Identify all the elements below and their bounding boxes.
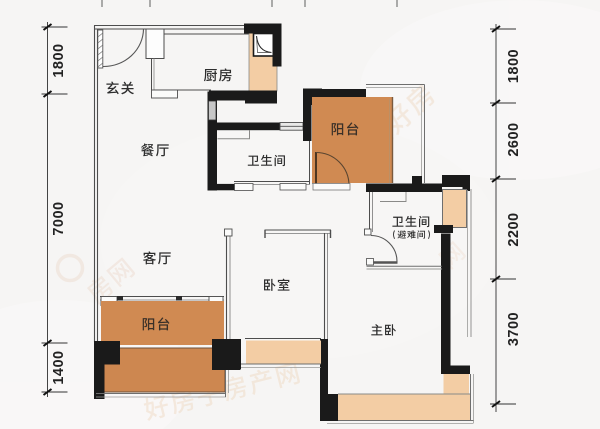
svg-text:2600: 2600	[506, 122, 522, 156]
svg-text:1800: 1800	[506, 49, 522, 83]
svg-text:3700: 3700	[506, 312, 522, 346]
svg-text:1800: 1800	[51, 43, 67, 77]
svg-text:2200: 2200	[506, 212, 522, 246]
svg-text:1400: 1400	[51, 350, 67, 384]
svg-text:7000: 7000	[51, 201, 67, 235]
